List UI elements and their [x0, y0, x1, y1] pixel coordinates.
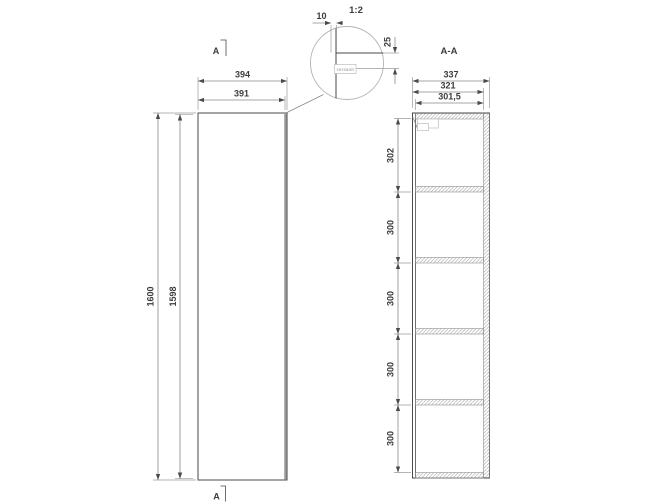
dim-depth-outer: 337 — [443, 70, 458, 80]
dim-top-offset: 10 — [316, 11, 326, 21]
drawing-canvas: 394 391 1600 1598 A A cersa — [0, 0, 670, 504]
dim-width-inner: 391 — [234, 89, 249, 99]
brand-label: cersanit — [337, 67, 355, 72]
front-view-outline — [198, 113, 287, 480]
section-top-panel — [416, 114, 484, 120]
front-view: 394 391 1600 1598 A A — [146, 40, 288, 502]
dim-compartment-5: 300 — [386, 431, 396, 446]
section-marker-top-label: A — [213, 46, 220, 56]
section-compartment-dims: 302 300 300 300 300 — [386, 119, 412, 473]
dim-compartment-4: 300 — [386, 362, 396, 377]
detail-scale-label: 1:2 — [349, 5, 363, 16]
section-view: A-A 337 321 301,5 — [386, 46, 490, 478]
dim-height-outer: 1600 — [146, 286, 156, 306]
detail-view: cersanit 10 25 1:2 — [287, 5, 399, 113]
section-shelf-3 — [416, 329, 484, 335]
technical-drawing-sheet: 394 391 1600 1598 A A cersa — [0, 0, 670, 504]
dim-compartment-1: 302 — [386, 148, 396, 163]
detail-leader-line — [287, 95, 324, 113]
front-height-dims: 1600 1598 — [146, 113, 197, 480]
dim-compartment-3: 300 — [386, 291, 396, 306]
dim-side-depth: 25 — [383, 37, 393, 47]
section-marker-bottom-label: A — [213, 492, 220, 502]
detail-circle — [311, 27, 384, 100]
section-bottom-panel — [416, 473, 484, 479]
section-shelf-4 — [416, 400, 484, 406]
front-width-dims: 394 391 — [198, 70, 287, 111]
section-marker-top: A — [213, 40, 226, 56]
dim-depth-interior: 301,5 — [438, 92, 461, 102]
section-title: A-A — [441, 46, 458, 57]
dim-compartment-2: 300 — [386, 220, 396, 235]
dim-depth-carcass: 321 — [440, 81, 455, 91]
section-marker-bottom: A — [213, 486, 225, 502]
section-shelf-1 — [416, 187, 484, 193]
dim-height-inner: 1598 — [168, 286, 178, 306]
section-outline — [413, 113, 490, 478]
dim-width-outer: 394 — [235, 70, 250, 80]
section-back-wall — [484, 114, 490, 478]
section-shelf-2 — [416, 258, 484, 264]
section-depth-dims: 337 321 301,5 — [413, 70, 490, 111]
